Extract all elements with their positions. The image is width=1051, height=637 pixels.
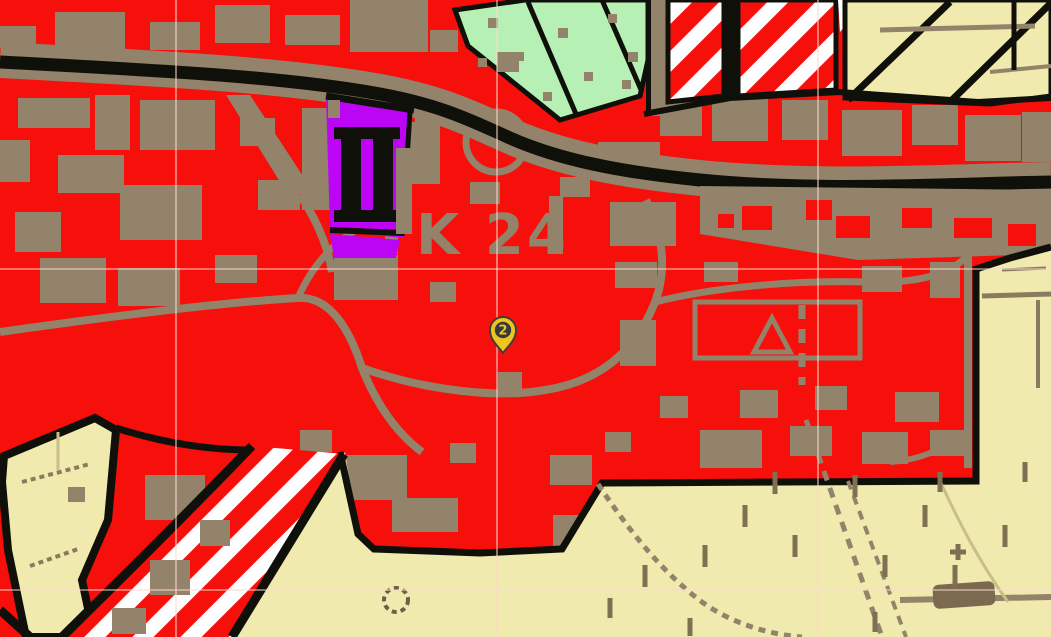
beige-brown-line-east [982, 294, 1051, 296]
beige-hatched-parcel [845, 0, 1051, 104]
location-marker-number: 2 [498, 324, 507, 339]
striped-parcel-b [738, 0, 836, 96]
west-parcel-building [68, 487, 85, 502]
purple-zone-brown-patch [396, 148, 412, 234]
road-label-k24: K 24 [416, 203, 569, 268]
north-strip-black-edge [646, 0, 651, 114]
dark-brown-structure [932, 581, 996, 609]
map-viewport[interactable]: K 242 [0, 0, 1051, 637]
purple-border-bottom [330, 230, 403, 233]
zoning-map[interactable]: K 242 [0, 0, 1051, 637]
striped-parcel-a [668, 0, 724, 102]
purple-zone-brown-corner [328, 100, 340, 118]
